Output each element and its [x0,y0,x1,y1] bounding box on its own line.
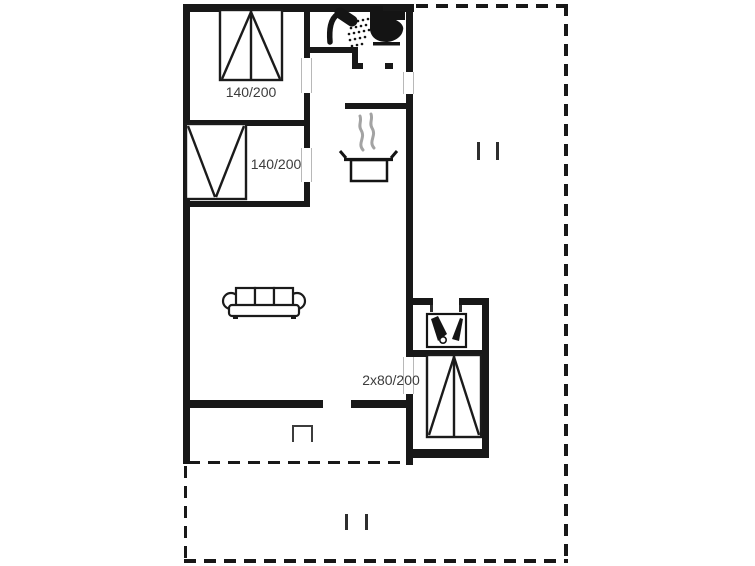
steam-icon [360,114,374,150]
washbasin-icon [427,314,466,347]
bed-size-label: 140/200 [247,156,305,172]
sofa-icon [223,288,305,319]
bed-icon [186,124,246,199]
bed-size-label: 2x80/200 [359,372,423,388]
cooking-pot-icon [340,151,397,181]
bed-icon [220,10,282,80]
bed-icon [427,355,481,437]
bed-size-label: 140/200 [220,84,282,100]
toilet-icon [370,6,405,46]
furniture-layer [0,0,755,566]
floor-plan: 140/200 140/200 2x80/200 [0,0,755,566]
shower-icon [330,13,371,47]
